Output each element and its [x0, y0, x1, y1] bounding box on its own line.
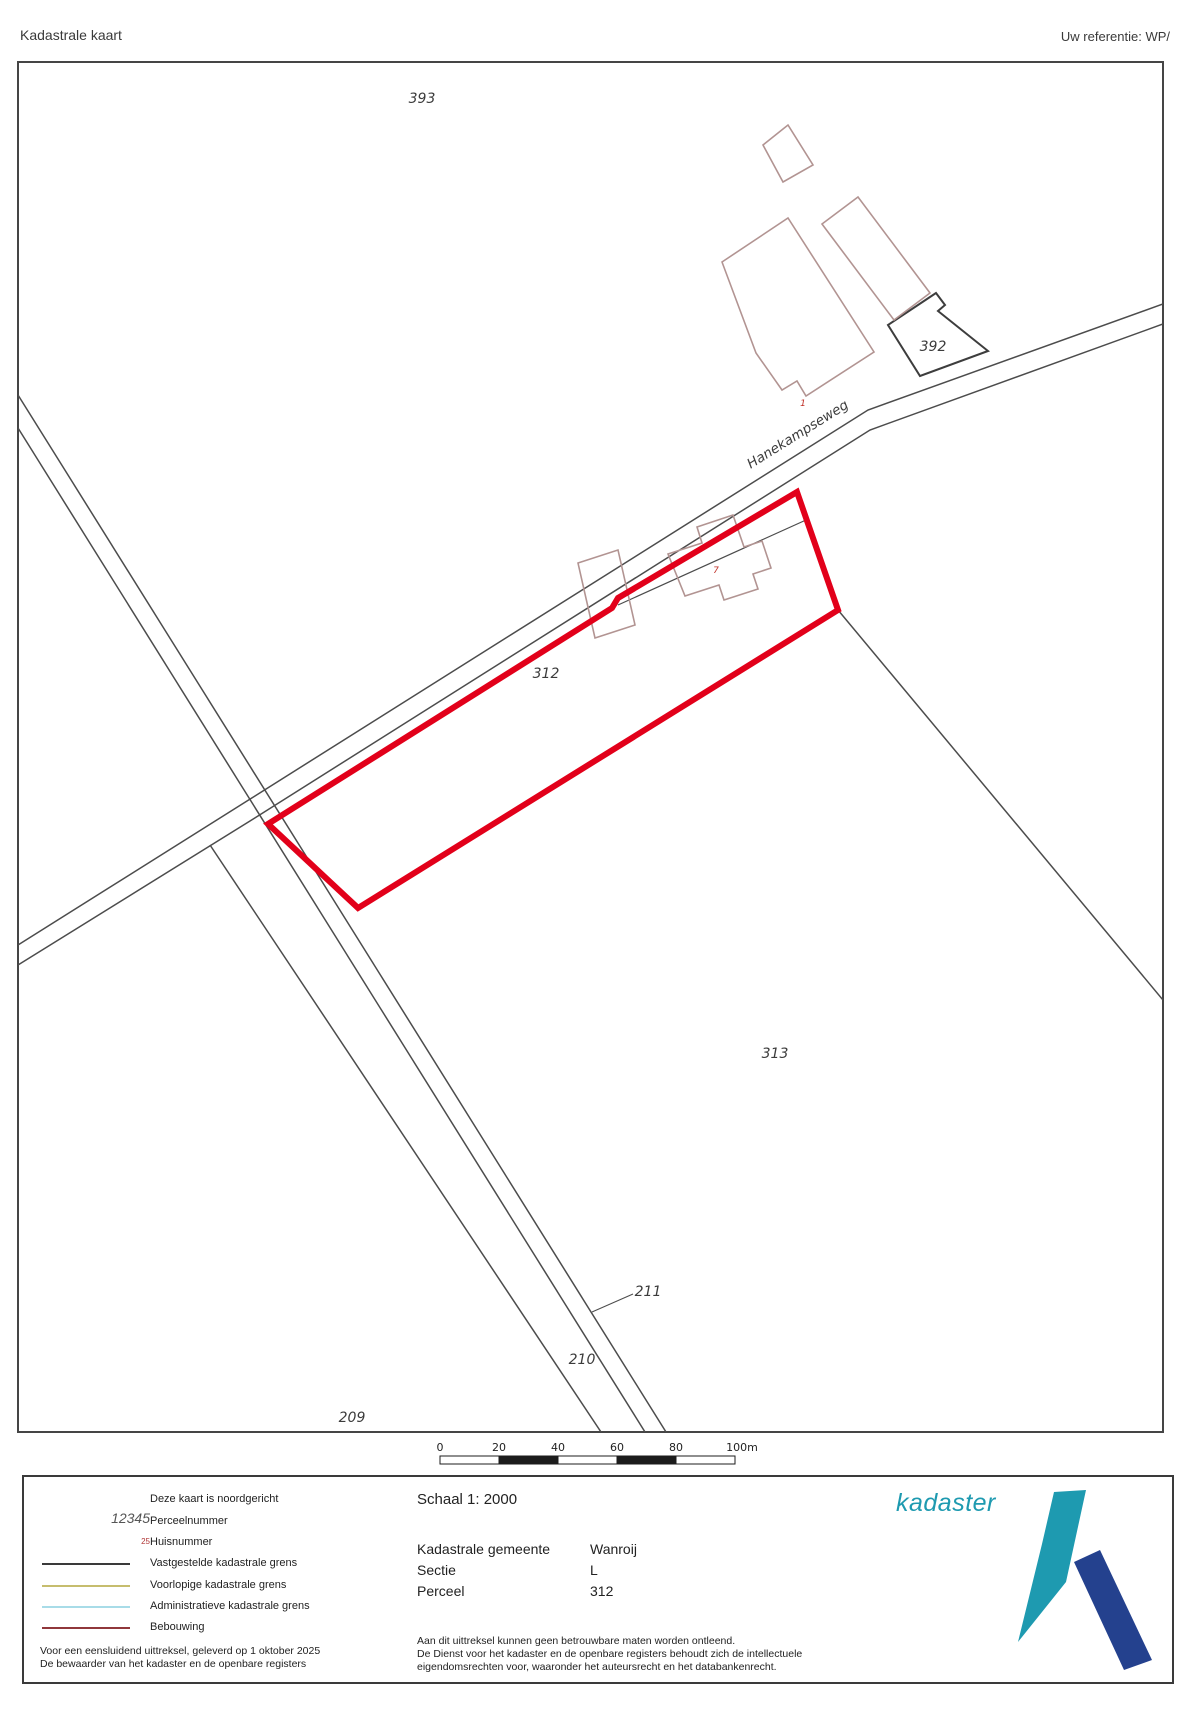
legend-box: Deze kaart is noordgericht 12345 Perceel…: [22, 1475, 1174, 1684]
legend-symbol-huisnummer: 25: [44, 1537, 150, 1546]
scale-tick-80: 80: [669, 1441, 683, 1454]
scale-segment-4: [617, 1456, 676, 1464]
detail-label-gemeente: Kadastrale gemeente: [417, 1541, 550, 1557]
house-number-7: 7: [713, 566, 719, 576]
legend-footer-line2: De bewaarder van het kadaster en de open…: [40, 1658, 306, 1670]
parcel-label-210: 210: [569, 1352, 596, 1368]
cadastral-map: 393 392 312 313 211 210 209 1 7 Hanekamp…: [0, 0, 1200, 1719]
parcel-label-211: 211: [635, 1284, 662, 1300]
legend-swatch-vastgestelde-grens: [42, 1563, 130, 1565]
parcel-label-313: 313: [762, 1046, 789, 1062]
scale-segment-1: [440, 1456, 499, 1464]
scale-segment-3: [558, 1456, 617, 1464]
scale-tick-20: 20: [492, 1441, 506, 1454]
legend-label-bebouwing: Bebouwing: [150, 1621, 204, 1633]
disclaimer-line3: eigendomsrechten voor, waaronder het aut…: [417, 1661, 802, 1674]
scale-tick-60: 60: [610, 1441, 624, 1454]
legend-label-vastgestelde-grens: Vastgestelde kadastrale grens: [150, 1557, 297, 1569]
scale-text: Schaal 1: 2000: [417, 1491, 517, 1508]
parcel-label-209: 209: [339, 1410, 366, 1426]
detail-value-perceel: 312: [590, 1583, 613, 1599]
legend-swatch-voorlopige-grens: [42, 1585, 130, 1587]
legend-swatch-administratieve-grens: [42, 1606, 130, 1608]
kadaster-logo-icon: [1009, 1485, 1181, 1677]
parcel-label-393: 393: [409, 91, 436, 107]
north-note: Deze kaart is noordgericht: [150, 1493, 278, 1505]
detail-value-sectie: L: [590, 1562, 598, 1578]
parcel-label-392: 392: [920, 339, 947, 355]
disclaimer: Aan dit uittreksel kunnen geen betrouwba…: [417, 1635, 802, 1674]
legend-label-administratieve-grens: Administratieve kadastrale grens: [150, 1600, 310, 1612]
detail-value-gemeente: Wanroij: [590, 1541, 637, 1557]
disclaimer-line2: De Dienst voor het kadaster en de openba…: [417, 1648, 802, 1661]
parcel-label-312: 312: [533, 666, 560, 682]
scale-tick-0: 0: [437, 1441, 444, 1454]
house-number-1: 1: [800, 399, 806, 409]
legend-swatch-bebouwing: [42, 1627, 130, 1629]
scale-segment-5: [676, 1456, 735, 1464]
reference-label: Uw referentie: WP/: [1061, 29, 1170, 44]
legend-footer-line1: Voor een eensluidend uittreksel, gelever…: [40, 1645, 320, 1657]
disclaimer-line1: Aan dit uittreksel kunnen geen betrouwba…: [417, 1635, 802, 1648]
legend-symbol-perceelnummer: 12345: [44, 1510, 150, 1526]
legend-label-voorlopige-grens: Voorlopige kadastrale grens: [150, 1579, 286, 1591]
legend-label-perceelnummer: Perceelnummer: [150, 1515, 228, 1527]
detail-label-sectie: Sectie: [417, 1562, 456, 1578]
page-title: Kadastrale kaart: [20, 27, 122, 43]
scale-bar: 0 20 40 60 80 100m: [437, 1441, 758, 1464]
kadaster-logo-text: kadaster: [896, 1489, 996, 1518]
scale-segment-2: [499, 1456, 558, 1464]
legend-label-huisnummer: Huisnummer: [150, 1536, 212, 1548]
map-frame: [18, 62, 1163, 1432]
scale-tick-100m: 100m: [726, 1441, 758, 1454]
scale-tick-40: 40: [551, 1441, 565, 1454]
detail-label-perceel: Perceel: [417, 1583, 464, 1599]
